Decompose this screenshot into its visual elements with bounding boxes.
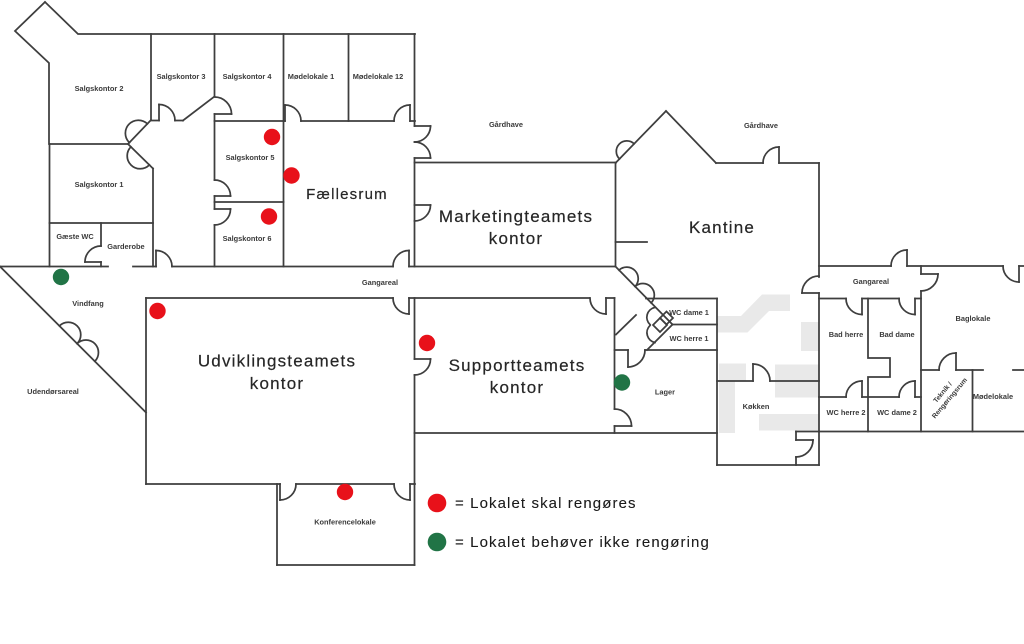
svg-text:Gangareal: Gangareal: [853, 277, 889, 286]
svg-text:Gangareal: Gangareal: [362, 278, 398, 287]
svg-text:Vindfang: Vindfang: [72, 299, 104, 308]
svg-text:Garderobe: Garderobe: [107, 242, 144, 251]
svg-text:Udviklingsteamets: Udviklingsteamets: [198, 352, 356, 371]
svg-text:WC herre 2: WC herre 2: [826, 408, 865, 417]
svg-text:Konferencelokale: Konferencelokale: [314, 518, 376, 527]
svg-text:Mødelokale 1: Mødelokale 1: [288, 72, 334, 81]
svg-text:WC dame 1: WC dame 1: [669, 308, 709, 317]
svg-text:kontor: kontor: [490, 378, 544, 397]
svg-text:= Lokalet skal rengøres: = Lokalet skal rengøres: [455, 495, 637, 512]
svg-text:Salgskontor 5: Salgskontor 5: [226, 153, 275, 162]
svg-text:Mødelokale 12: Mødelokale 12: [353, 72, 404, 81]
svg-text:Køkken: Køkken: [743, 402, 770, 411]
svg-text:Salgskontor 6: Salgskontor 6: [223, 234, 272, 243]
svg-text:Kantine: Kantine: [689, 218, 755, 237]
svg-text:Gårdhave: Gårdhave: [744, 121, 778, 130]
svg-text:Bad herre: Bad herre: [829, 330, 864, 339]
svg-text:Fællesrum: Fællesrum: [306, 186, 388, 203]
svg-text:WC herre 1: WC herre 1: [669, 334, 708, 343]
svg-text:kontor: kontor: [489, 229, 543, 248]
svg-text:= Lokalet behøver ikke rengøri: = Lokalet behøver ikke rengøring: [455, 534, 710, 551]
svg-text:Salgskontor 1: Salgskontor 1: [75, 180, 124, 189]
svg-text:Mødelokale: Mødelokale: [973, 392, 1013, 401]
svg-text:kontor: kontor: [250, 374, 304, 393]
svg-text:Udendørsareal: Udendørsareal: [27, 387, 79, 396]
svg-text:Marketingteamets: Marketingteamets: [439, 207, 593, 226]
svg-text:Bad dame: Bad dame: [879, 330, 914, 339]
svg-text:Supportteamets: Supportteamets: [449, 356, 586, 375]
svg-text:Salgskontor 4: Salgskontor 4: [223, 72, 273, 81]
svg-text:Salgskontor 2: Salgskontor 2: [75, 84, 124, 93]
svg-text:Lager: Lager: [655, 388, 675, 397]
svg-text:Gæste WC: Gæste WC: [56, 232, 94, 241]
svg-text:Gårdhave: Gårdhave: [489, 120, 523, 129]
svg-text:Baglokale: Baglokale: [956, 314, 991, 323]
svg-text:Salgskontor 3: Salgskontor 3: [157, 72, 206, 81]
svg-text:WC dame 2: WC dame 2: [877, 408, 917, 417]
